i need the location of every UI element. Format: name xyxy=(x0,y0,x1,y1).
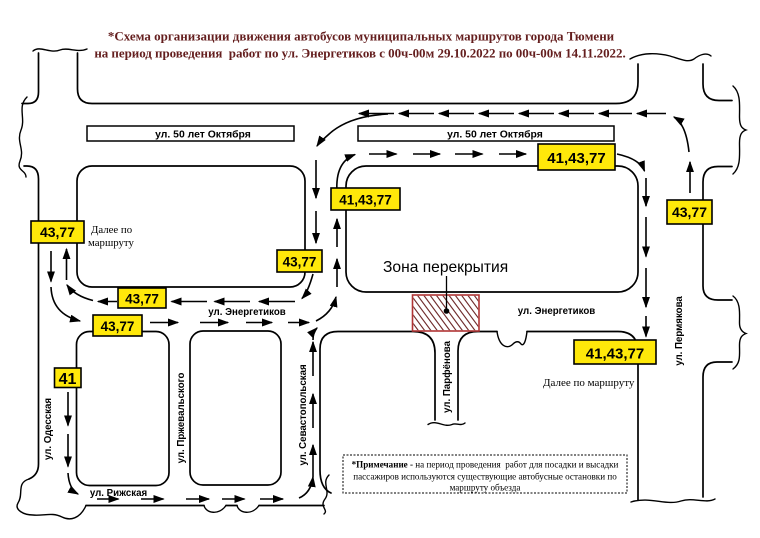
svg-text:43,77: 43,77 xyxy=(283,255,317,270)
svg-text:Далее по: Далее по xyxy=(91,224,132,236)
svg-text:43,77: 43,77 xyxy=(125,292,159,307)
svg-text:*Схема организации движения ав: *Схема организации движения автобусов му… xyxy=(108,29,615,44)
svg-text:41,43,77: 41,43,77 xyxy=(547,150,605,167)
svg-text:ул. Энергетиков: ул. Энергетиков xyxy=(208,307,285,318)
svg-text:ул. Энергетиков: ул. Энергетиков xyxy=(518,306,595,317)
svg-text:41,43,77: 41,43,77 xyxy=(586,346,644,363)
svg-text:43,77: 43,77 xyxy=(40,224,75,240)
svg-text:маршруту: маршруту xyxy=(88,237,134,249)
svg-text:41: 41 xyxy=(59,371,77,388)
svg-text:41,43,77: 41,43,77 xyxy=(339,193,392,208)
svg-text:ул. Одесская: ул. Одесская xyxy=(43,398,54,460)
svg-text:пассажиров используются сущест: пассажиров используются существующие авт… xyxy=(353,472,617,482)
svg-text:43,77: 43,77 xyxy=(672,204,707,220)
svg-text:ул. 50 лет Октября: ул. 50 лет Октября xyxy=(447,129,543,141)
svg-text:Далее по маршруту: Далее по маршруту xyxy=(543,377,635,389)
svg-text:маршруту объезда: маршруту объезда xyxy=(450,483,521,493)
svg-text:ул. Рижская: ул. Рижская xyxy=(90,488,147,499)
svg-text:*Примечание - на период провед: *Примечание - на период проведения работ… xyxy=(352,460,619,470)
svg-text:ул. 50 лет Октября: ул. 50 лет Октября xyxy=(155,129,251,141)
svg-text:ул. Пермякова: ул. Пермякова xyxy=(674,296,685,366)
svg-text:43,77: 43,77 xyxy=(101,319,135,334)
svg-text:ул. Парфёнова: ул. Парфёнова xyxy=(442,340,453,413)
svg-text:ул. Пржевальского: ул. Пржевальского xyxy=(176,372,187,463)
svg-text:на период проведения работ по: на период проведения работ по ул. Энерге… xyxy=(94,46,625,61)
svg-text:ул. Севастопольская: ул. Севастопольская xyxy=(298,364,309,465)
svg-text:Зона перекрытия: Зона перекрытия xyxy=(383,259,508,276)
